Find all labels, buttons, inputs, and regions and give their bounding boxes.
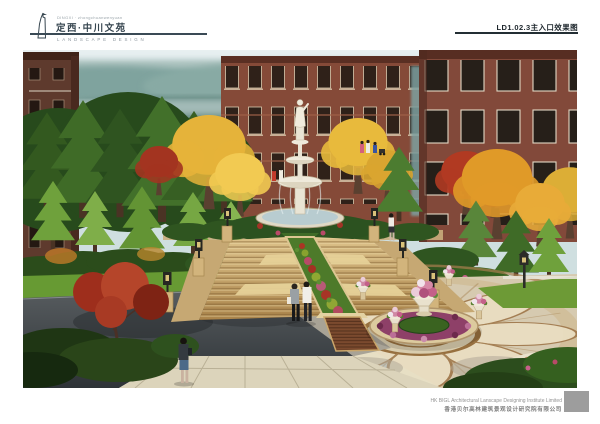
company-name-en: HK BIGL Architectural Lanscape Designing… bbox=[430, 398, 562, 404]
tower-logo-icon bbox=[33, 12, 53, 40]
rendering-svg bbox=[23, 50, 577, 388]
discipline-label: LANDSCAPE DESIGN bbox=[57, 37, 146, 42]
footer-logo-block bbox=[564, 391, 589, 412]
presentation-board: DINGXI · zhongchuanwenyuan 定西·中川文苑 LANDS… bbox=[0, 0, 600, 424]
entrance-rendering bbox=[23, 50, 577, 388]
header-rule-left bbox=[30, 33, 207, 35]
company-name-cn: 香港贝尔高林建筑景观设计研究院有限公司 bbox=[444, 405, 562, 413]
project-title: 定西·中川文苑 bbox=[56, 20, 127, 34]
header-rule-right bbox=[455, 32, 578, 34]
